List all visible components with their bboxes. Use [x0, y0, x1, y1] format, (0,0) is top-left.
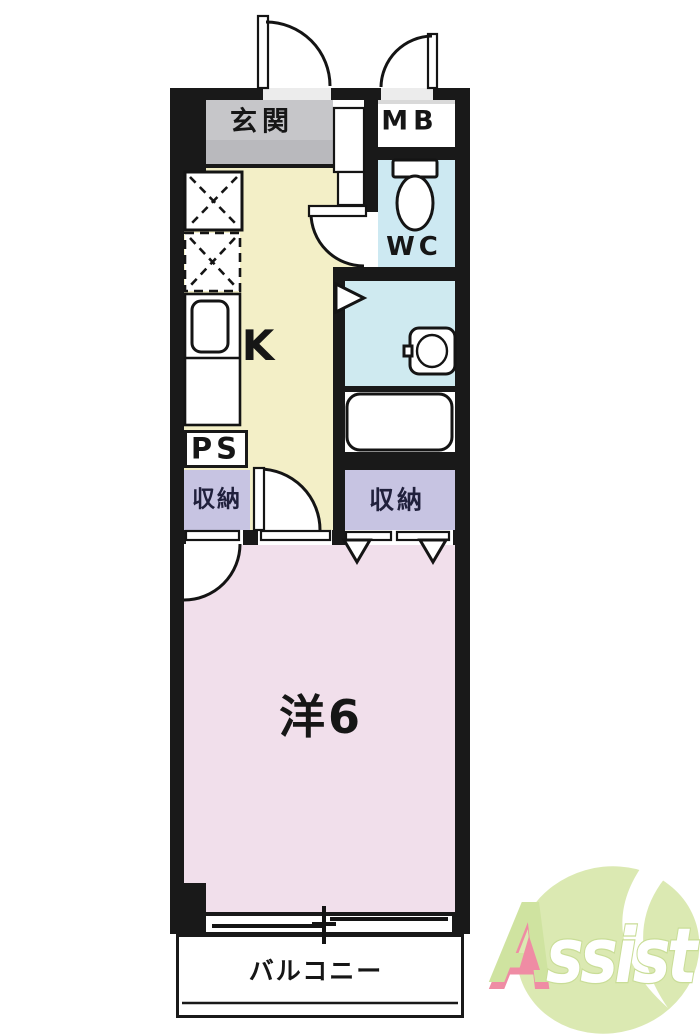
- pipe-space-label: PS: [191, 435, 241, 464]
- logo-letter-a: A: [488, 880, 556, 1008]
- opening-kitchen-door: [258, 530, 332, 545]
- entrance-door: [258, 16, 330, 88]
- genkan-label: 玄関: [230, 109, 294, 136]
- logo-letter-a-shadow: A: [488, 887, 556, 1015]
- kitchen-label: K: [242, 325, 275, 367]
- wall-kitchen-washroom: [333, 267, 345, 532]
- wc-label: WC: [386, 234, 442, 260]
- assist-logo: A A ssist: [488, 845, 700, 1036]
- wall-left-top-chunk: [170, 88, 206, 172]
- wall-wc-washroom: [333, 267, 455, 281]
- wall-right: [455, 88, 470, 934]
- storage-right-label: 収納: [369, 488, 425, 513]
- genkan-step: [206, 140, 333, 166]
- opening-window: [206, 916, 452, 932]
- meter-box-label: MB: [381, 108, 438, 135]
- wall-left: [170, 88, 184, 934]
- balcony-label: バルコニー: [249, 959, 384, 984]
- wall-washroom-bath: [345, 386, 455, 392]
- wall-genkan-line: [206, 164, 333, 168]
- wall-bath-storage: [333, 452, 455, 470]
- storage-left-label: 収納: [192, 489, 242, 512]
- logo-letters-rest: ssist: [546, 911, 700, 1000]
- logo-leaf: [497, 845, 700, 1036]
- western-room-label: 洋6: [279, 694, 363, 740]
- logo-leaf-swoosh: [622, 866, 674, 1008]
- opening-mb-door: [381, 88, 433, 100]
- logo-a-counter: [519, 936, 540, 970]
- room-bathroom: [345, 392, 455, 452]
- opening-storage-left-door: [186, 530, 243, 545]
- opening-entrance: [263, 88, 331, 100]
- opening-wc-door: [364, 212, 378, 267]
- floor-plan: A A ssist 玄関 MB WC K PS 収納 収納 洋6 バルコニー: [0, 0, 700, 1036]
- room-washroom: [345, 281, 455, 386]
- opening-storage-right-doors: [345, 530, 453, 545]
- meter-box-door: [381, 34, 437, 88]
- wall-mb-bottom: [374, 147, 455, 160]
- room-kitchen-upper: [184, 168, 364, 267]
